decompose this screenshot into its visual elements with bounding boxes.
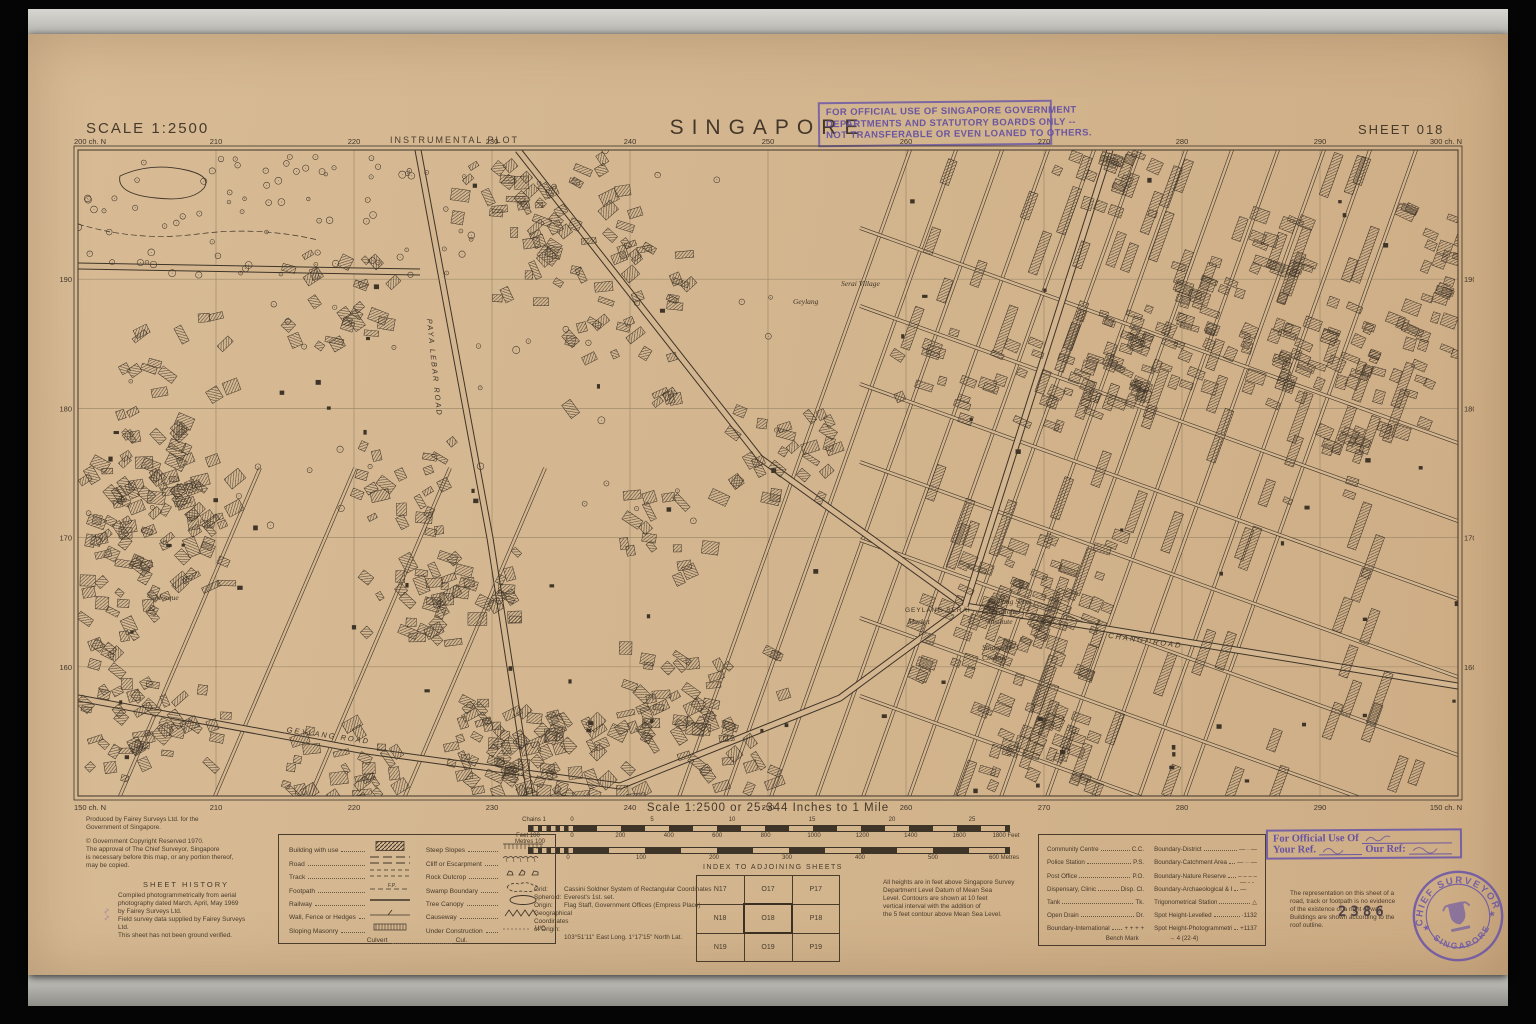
legend-label: Spot Height-Photogrammetric: [1154, 925, 1232, 932]
place-label: GEYLANG SERAI: [905, 607, 971, 614]
index-to-adjoining-sheets: N17O17P17N18O18P18N19O19P19: [696, 875, 840, 962]
legend-symbol: [501, 854, 545, 868]
dotted-leader: [1234, 890, 1238, 891]
legend-symbol: C.C.: [1132, 846, 1144, 853]
place-label: Institute: [987, 617, 1013, 626]
grid-note-key: Grid:: [534, 886, 564, 894]
map-sheet: SCALE 1:2500 INSTRUMENTAL PLOT SINGAPORE…: [28, 34, 1508, 975]
place-label: Geylang Serai: [988, 597, 1031, 606]
legend-label: Footpath: [289, 888, 315, 895]
credit-line: Produced by Fairey Surveys Ltd. for the: [86, 816, 233, 824]
legend-row: Dispensary, ClinicDisp. Cl.: [1047, 880, 1144, 893]
grid-tick-label: 210: [210, 803, 223, 812]
legend-symbol: + + + +: [1124, 925, 1144, 932]
grid-note-key: Geographical Coordinates of Origin:: [534, 910, 564, 934]
index-cell-O17: O17: [744, 876, 792, 905]
dotted-leader: [468, 851, 498, 852]
scalebar-tick: 400: [855, 855, 865, 861]
place-label: Mosque: [154, 593, 179, 602]
index-cell-P19: P19: [792, 933, 840, 962]
index-cell-P17: P17: [792, 876, 840, 905]
dotted-leader: [1214, 916, 1240, 917]
grid-tick-label: 150 ch. N: [74, 803, 106, 812]
handwriting-mark: [1411, 843, 1451, 855]
legend-symbol: — · —: [1239, 846, 1257, 853]
legend-label: Police Station: [1047, 859, 1085, 866]
place-label: PAYA LEBAR ROAD: [425, 318, 444, 417]
sheet-number: SHEET 018: [1358, 122, 1444, 137]
index-cell-N19: N19: [697, 933, 745, 962]
legend-label: Boundary-Archaeological & Port Limits: [1154, 886, 1232, 893]
legend-symbol: Disp. Cl.: [1121, 886, 1144, 893]
bench-mark-row: Bench Mark→ 4 (22·4): [1047, 935, 1257, 942]
scalebar-tick: 200: [709, 855, 719, 861]
grid-tick-label: 290: [1314, 803, 1327, 812]
legend-label: Tree Canopy: [426, 901, 464, 908]
svg-text:F.P.: F.P.: [388, 883, 396, 889]
credit-line: Government of Singapore.: [86, 824, 233, 832]
dotted-leader: [460, 918, 498, 919]
grid-tick-label: 230: [486, 803, 499, 812]
place-label: Serai Village: [841, 279, 880, 288]
steep-symbol: [501, 840, 545, 852]
stamp-crest: [1442, 900, 1474, 933]
grid-tick-label: 220: [348, 138, 361, 146]
scalebar-tick: 400: [664, 833, 674, 839]
legend-row: TankTk.: [1047, 893, 1144, 906]
scalebar-tick: 600 Metres: [989, 855, 1019, 861]
legend-label: Post Office: [1047, 873, 1077, 880]
grid-tick-label: 280: [1176, 138, 1189, 146]
svg-text:★: ★: [1421, 922, 1431, 933]
legend-label: Boundary-Catchment Area: [1154, 859, 1227, 866]
grid-note-key: Origin:: [534, 902, 564, 910]
legend-row: Building with use: [289, 841, 412, 854]
legend-row: Trigonometrical Station△: [1154, 893, 1257, 906]
legend-row: Boundary-District— · —: [1154, 840, 1257, 853]
sheet-history-line: Ltd.: [118, 924, 245, 932]
legend-symbol: [368, 840, 412, 854]
rep-note-line: The representation on this sheet of a: [1290, 890, 1415, 898]
legend-row: Spot Height-Levelled·1132: [1154, 906, 1257, 919]
legend-label: Building with use: [289, 847, 338, 854]
legend-label: Rock Outcrop: [426, 874, 466, 881]
grid-tick-label: 280: [1176, 803, 1189, 812]
legend-row: FootpathF.P.: [289, 881, 412, 894]
pencil-mark: ∿∿: [102, 908, 111, 922]
sheet-history-body: Compiled photogrammetrically from aerial…: [118, 892, 245, 940]
stream: [78, 224, 318, 240]
cliff-symbol: [501, 854, 545, 866]
grid-tick-label: 250: [762, 138, 775, 146]
scalebar-feet: [528, 825, 1010, 832]
chief-surveyor-stamp: CHIEF SURVEYOR SINGAPORE ★★: [1401, 859, 1515, 973]
heights-note-line: All heights are in feet above Singapore …: [883, 879, 1028, 887]
sheet-history-title: SHEET HISTORY: [86, 880, 286, 889]
copyright-line: The approval of The Chief Surveyor, Sing…: [86, 846, 233, 854]
sheet-history-line: by Fairey Surveys Ltd.: [118, 908, 245, 916]
legend-row: Wall, Fence or Hedges: [289, 908, 412, 921]
abbreviations-box: Community CentreC.C.Police StationP.S.Po…: [1038, 834, 1266, 946]
dotted-leader: [341, 851, 364, 852]
legend-label: Dispensary, Clinic: [1047, 886, 1096, 893]
scalebar-tick: 1800 Feet: [992, 833, 1019, 839]
grid-tick-label: 300 ch. N: [1430, 138, 1462, 146]
dotted-leader: [467, 905, 498, 906]
scalebar-tick: 1400: [904, 833, 917, 839]
dotted-leader: [308, 878, 365, 879]
legend-box: Building with useRoadTrackFootpathF.P.Ra…: [278, 834, 556, 944]
scalebar-tick: 0: [566, 855, 569, 861]
rep-note-line: roof outline.: [1290, 922, 1415, 930]
refs-stamp: For Official Use Of Your Ref. Our Ref:: [1266, 828, 1462, 859]
legend-symbol: [368, 894, 412, 908]
grid-note-value: Cassini Soldner System of Rectangular Co…: [564, 886, 711, 894]
sheet-history-line: photography dated March, April, May 1969: [118, 900, 245, 908]
place-label: Market: [907, 617, 931, 626]
sheet-history-line: Field survey data supplied by Fairey Sur…: [118, 916, 245, 924]
grid-tick-label: 180: [60, 404, 72, 413]
grid-note-value: Flag Staff, Government Offices (Empress …: [564, 902, 701, 910]
grid-tick-label: 170: [60, 534, 72, 543]
scalebar-tick: 300: [782, 855, 792, 861]
legend-label: Spot Height-Levelled: [1154, 912, 1211, 919]
place-label: Cinema: [982, 653, 1006, 662]
pond-outline: [120, 167, 206, 199]
grid-tick-label: 270: [1038, 138, 1051, 146]
dotted-leader: [1204, 850, 1238, 851]
legend-row: Under ConstructionU/C: [426, 921, 545, 934]
survey-map: Serai VillageGeylangMosqueGEYLANG SERAIM…: [60, 138, 1474, 814]
grid-layer: [78, 150, 1458, 796]
legend-label: Steep Slopes: [426, 847, 465, 854]
scalebar-tick: 1600: [953, 833, 966, 839]
scalebar-metres: [528, 847, 1010, 854]
dotted-leader: [1062, 903, 1133, 904]
legend-row: Community CentreC.C.: [1047, 840, 1144, 853]
legend-row: Cliff or Escarpment: [426, 854, 545, 867]
heights-note-line: Level. Contours are shown at 10 feet: [883, 895, 1028, 903]
map-content: Serai VillageGeylangMosqueGEYLANG SERAIM…: [75, 147, 1469, 814]
grid-tick-label: 190: [1464, 275, 1474, 284]
scalebar-tick: 800: [761, 833, 771, 839]
serial-number: 2386: [1338, 904, 1388, 920]
dotted-leader: [1229, 863, 1235, 864]
dotted-leader: [318, 892, 365, 893]
footpath-symbol: F.P.: [368, 881, 412, 893]
masonry-symbol: [368, 921, 412, 933]
heights-note-line: vertical interval with the addition of: [883, 903, 1028, 911]
grid-tick-label: 270: [1038, 803, 1051, 812]
scalebar-tick: 15: [809, 817, 816, 823]
scalebar-tick: 0: [570, 817, 573, 823]
grid-note-value: 103°51'11" East Long. 1°17'15" North Lat…: [564, 934, 682, 942]
legend-label: Boundary-District: [1154, 846, 1201, 853]
dotted-leader: [1079, 877, 1130, 878]
fence-symbol: [368, 907, 412, 919]
legend-label: Track: [289, 874, 305, 881]
dotted-leader: [1219, 903, 1250, 904]
legend-label: Wall, Fence or Hedges: [289, 914, 356, 921]
legend-symbol: Tk.: [1135, 899, 1144, 906]
legend-symbol: P.S.: [1133, 859, 1144, 866]
scalebar-tick: 0: [570, 833, 573, 839]
scalebar-tick: Chains 1: [522, 817, 546, 823]
legend-row: Post OfficeP.O.: [1047, 866, 1144, 879]
index-cell-P18: P18: [792, 904, 840, 933]
copyright-line: © Government Copyright Reserved 1970.: [86, 838, 233, 846]
heights-note: All heights are in feet above Singapore …: [883, 879, 1028, 919]
index-cell-N17: N17: [697, 876, 745, 905]
grid-note-value: Everest's 1st. set.: [564, 894, 614, 902]
grid-note-key: Spheroid:: [534, 894, 564, 902]
scalebar-tick: 1200: [856, 833, 869, 839]
dotted-leader: [1087, 863, 1131, 864]
scalebar-tick: 600: [712, 833, 722, 839]
legend-label: Railway: [289, 901, 312, 908]
scalebar-tick: 25: [969, 817, 976, 823]
scalebar-tick: 10: [729, 817, 736, 823]
photo-of-map-sheet: { "header": { "scale_label": "SCALE 1:25…: [0, 0, 1536, 1024]
survey-map-drawing: Serai VillageGeylangMosqueGEYLANG SERAIM…: [60, 138, 1474, 814]
legend-symbol: — ·· —: [1237, 859, 1257, 866]
dotted-leader: [1101, 850, 1130, 851]
grid-tick-label: 180: [1464, 404, 1474, 413]
place-label: Vocational: [988, 607, 1020, 616]
dotted-leader: [485, 865, 498, 866]
legend-label: Boundary-Nature Reserve: [1154, 873, 1226, 880]
legend-row: Rock Outcrop: [426, 868, 545, 881]
legend-row: Track: [289, 868, 412, 881]
legend-row: Boundary-Nature Reserve– – – –: [1154, 866, 1257, 879]
legend-label: Sloping Masonry: [289, 928, 338, 935]
copyright-line: is necessary before this map, or any por…: [86, 854, 233, 862]
credits-block: Produced by Fairey Surveys Ltd. for theG…: [86, 816, 233, 870]
legend-label: Tank: [1047, 899, 1060, 906]
legend-row: Causeway: [426, 908, 545, 921]
table-edge-top: [28, 9, 1508, 35]
grid-tick-label: 290: [1314, 138, 1327, 146]
legend-row: Boundary-Catchment Area— ·· —: [1154, 853, 1257, 866]
legend-row: Boundary-Archaeological & Port Limits— -…: [1154, 880, 1257, 893]
grid-tick-label: 220: [348, 803, 361, 812]
legend-row: Railway: [289, 895, 412, 908]
rock-symbol: [501, 867, 545, 879]
legend-row: Police StationP.S.: [1047, 853, 1144, 866]
legend-row: Swamp Boundary: [426, 881, 545, 894]
place-label: Geylang: [793, 297, 819, 306]
scalebar-tick: 500: [928, 855, 938, 861]
dotted-leader: [1112, 929, 1123, 930]
dotted-leader: [1098, 890, 1119, 891]
grid-tick-label: 230: [486, 138, 499, 146]
dotted-leader: [341, 932, 365, 933]
dotted-leader: [486, 932, 498, 933]
legend-symbol: P.O.: [1132, 873, 1144, 880]
dotted-leader: [1081, 916, 1135, 917]
dotted-leader: [359, 918, 365, 919]
legend-label: Boundary-International: [1047, 925, 1110, 932]
legend-label: Road: [289, 861, 305, 868]
legend-symbol: Dr.: [1136, 912, 1144, 919]
table-edge-bottom: [28, 974, 1508, 1006]
legend-symbol: [368, 867, 412, 881]
scalebar-tick: 1000: [807, 833, 820, 839]
road-symbol: [368, 854, 412, 866]
legend-label: Causeway: [426, 914, 457, 921]
legend-label: Swamp Boundary: [426, 888, 478, 895]
legend-symbol: ·1132: [1242, 912, 1257, 919]
buildings-layer: [75, 150, 1469, 814]
legend-row: Boundary-International+ + + +: [1047, 919, 1144, 932]
legend-symbol: — - - —: [1240, 879, 1257, 893]
dotted-leader: [308, 865, 365, 866]
grid-tick-label: 200 ch. N: [74, 138, 106, 146]
legend-culvert: CulvertCul.: [289, 937, 545, 944]
grid-tick-label: 240: [624, 138, 637, 146]
dotted-leader: [1234, 929, 1238, 930]
grid-tick-label: 150 ch. N: [1430, 803, 1462, 812]
legend-row: Steep Slopes: [426, 841, 545, 854]
grid-tick-label: 170: [1464, 534, 1474, 543]
index-title: INDEX TO ADJOINING SHEETS: [688, 864, 858, 871]
legend-row: Sloping Masonry: [289, 921, 412, 934]
dotted-leader: [481, 892, 498, 893]
index-cell-N18: N18: [697, 904, 745, 933]
grid-note-key: [534, 934, 564, 942]
copyright-line: may be copied.: [86, 862, 233, 870]
heights-note-line: the 5 feet contour above Mean Sea Level.: [883, 911, 1028, 919]
heights-note-line: Department Level Datum of Mean Sea: [883, 887, 1028, 895]
index-cell-O19: O19: [744, 933, 792, 962]
sheet-title: SINGAPORE: [28, 116, 1508, 140]
legend-label: Cliff or Escarpment: [426, 861, 482, 868]
scalebar-title: Scale 1:2500 or 25·344 Inches to 1 Mile: [528, 802, 1008, 814]
grid-tick-label: 190: [60, 275, 72, 284]
grid-tick-label: 210: [210, 138, 223, 146]
legend-symbol: [501, 867, 545, 881]
track-symbol: [368, 867, 412, 879]
scalebar-tick: 100: [636, 855, 646, 861]
legend-symbol: [368, 907, 412, 921]
dotted-leader: [315, 905, 365, 906]
legend-symbol: [368, 921, 412, 935]
sheet-history-line: This sheet has not been ground verified.: [118, 932, 245, 940]
place-label: Singapore: [982, 643, 1013, 652]
legend-symbol: [501, 840, 545, 854]
legend-label: Trigonometrical Station: [1154, 899, 1217, 906]
legend-label: Open Drain: [1047, 912, 1079, 919]
scalebar-tick: 5: [650, 817, 653, 823]
legend-symbol: △: [1252, 899, 1257, 906]
legend-label: Under Construction: [426, 928, 483, 935]
legend-row: Spot Height-Photogrammetric+1137: [1154, 919, 1257, 932]
index-cell-O18: O18: [744, 904, 792, 933]
sheet-history-line: Compiled photogrammetrically from aerial: [118, 892, 245, 900]
legend-row: Open DrainDr.: [1047, 906, 1144, 919]
legend-symbol: +1137: [1240, 925, 1257, 932]
legend-label: Community Centre: [1047, 846, 1099, 853]
legend-symbol: [368, 854, 412, 868]
railway-symbol: [368, 894, 412, 906]
building-symbol: [368, 840, 412, 852]
legend-symbol: F.P.: [368, 881, 412, 895]
dotted-leader: [469, 878, 498, 879]
dotted-leader: [1228, 877, 1236, 878]
grid-tick-label: 160: [60, 663, 72, 672]
grid-tick-label: 160: [1464, 663, 1474, 672]
legend-row: Road: [289, 854, 412, 867]
grid-tick-label: 260: [900, 138, 913, 146]
handwriting-mark: [1321, 844, 1361, 856]
scalebar-tick: 200: [615, 833, 625, 839]
legend-row: Tree Canopy: [426, 895, 545, 908]
scalebar-tick: 20: [889, 817, 896, 823]
